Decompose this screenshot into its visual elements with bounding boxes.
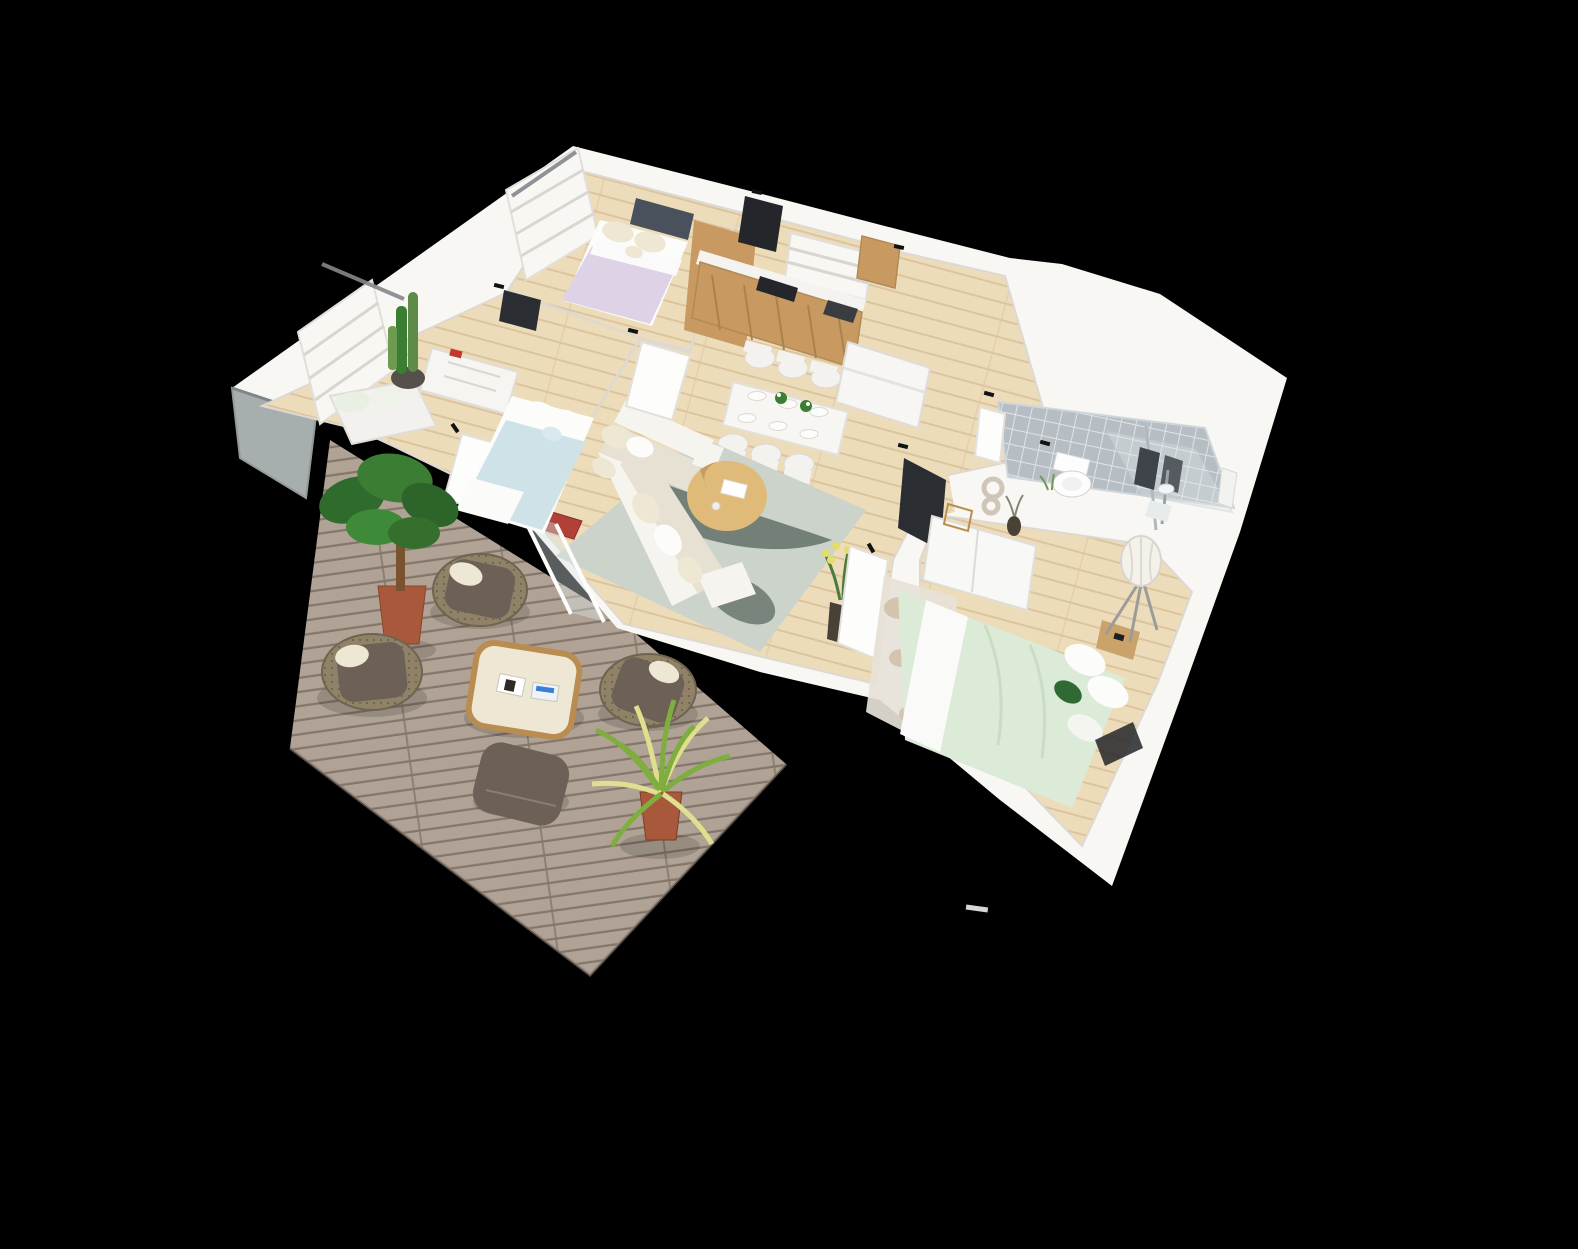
flower bbox=[827, 556, 835, 564]
cactus-pot bbox=[391, 367, 425, 389]
terrace-table-top bbox=[466, 640, 582, 739]
coffee-table bbox=[687, 461, 767, 531]
tree-trunk bbox=[396, 545, 405, 591]
corner-extractor-hood-icon bbox=[738, 196, 783, 252]
floorplan-canvas bbox=[0, 0, 1578, 1249]
floorplan-render bbox=[0, 0, 1578, 1249]
plate bbox=[810, 408, 828, 417]
bathroom-door-open bbox=[975, 407, 1005, 463]
bouquet bbox=[800, 400, 812, 412]
wicker-armchair-2 bbox=[322, 634, 422, 710]
shower-head bbox=[1158, 484, 1174, 494]
wall-cabinet bbox=[857, 236, 900, 288]
cactus-stem bbox=[408, 292, 418, 372]
cactus-arm bbox=[388, 326, 397, 370]
flower bbox=[832, 542, 840, 550]
cup bbox=[712, 502, 720, 510]
plate bbox=[769, 422, 787, 431]
coffee-table-top bbox=[687, 461, 767, 531]
plate bbox=[738, 414, 756, 423]
cactus-stem bbox=[396, 306, 407, 374]
toilet bbox=[1053, 452, 1091, 497]
flower bbox=[822, 549, 830, 557]
bouquet bbox=[775, 392, 787, 404]
spider-plant-pot bbox=[640, 792, 682, 840]
wicker-armchair-3 bbox=[600, 653, 696, 726]
plate bbox=[800, 430, 818, 439]
toilet-seat bbox=[1062, 477, 1082, 491]
dark-vase bbox=[1007, 516, 1021, 536]
bouquet-bloom bbox=[777, 393, 781, 397]
plate bbox=[748, 392, 766, 401]
wicker-armchair-1 bbox=[433, 554, 527, 626]
bouquet-bloom bbox=[806, 402, 810, 406]
tree-foliage bbox=[388, 517, 440, 549]
terrace-coffee-table bbox=[466, 640, 582, 739]
